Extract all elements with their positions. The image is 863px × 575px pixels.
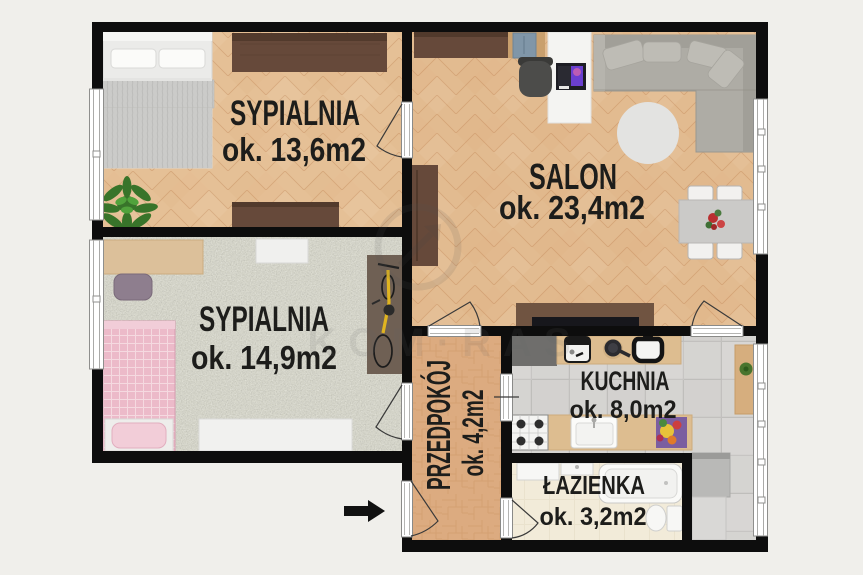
svg-text:ok. 13,6m2: ok. 13,6m2 — [222, 131, 366, 168]
svg-text:ok. 8,0m2: ok. 8,0m2 — [570, 396, 677, 424]
svg-text:KUCHNIA: KUCHNIA — [581, 366, 670, 396]
svg-text:ok. 4,2m2: ok. 4,2m2 — [457, 390, 490, 477]
svg-text:SYPIALNIA: SYPIALNIA — [230, 94, 360, 133]
svg-text:PRZEDPOKÓJ: PRZEDPOKÓJ — [420, 360, 457, 490]
svg-text:KOM·RAS: KOM·RAS — [307, 321, 582, 365]
svg-text:ŁAZIENKA: ŁAZIENKA — [543, 470, 645, 500]
svg-text:ok. 23,4m2: ok. 23,4m2 — [499, 189, 645, 226]
svg-text:ok. 3,2m2: ok. 3,2m2 — [540, 503, 647, 531]
